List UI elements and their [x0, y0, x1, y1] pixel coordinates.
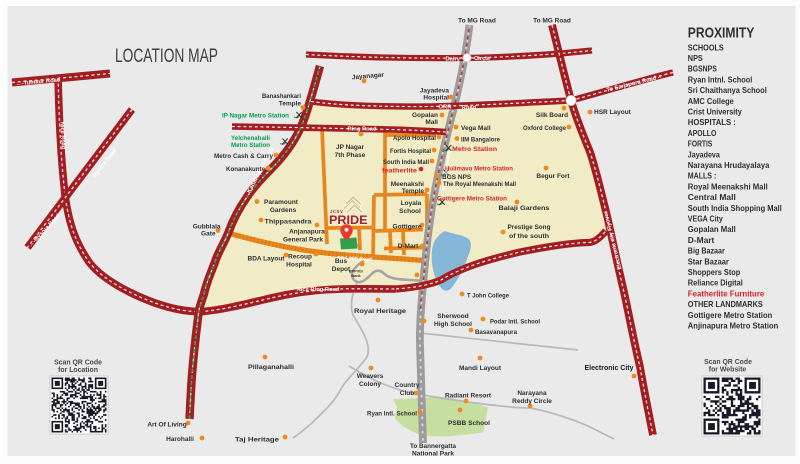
svg-text:Scan QR Code: Scan QR Code	[54, 360, 102, 367]
svg-text:Jayadeva: Jayadeva	[420, 88, 450, 95]
svg-text:Sri Chaithanya School: Sri Chaithanya School	[688, 86, 767, 95]
svg-text:Vega Mall: Vega Mall	[461, 125, 491, 132]
svg-text:Reliance Digital: Reliance Digital	[688, 279, 743, 288]
svg-text:BGSNPS: BGSNPS	[688, 65, 718, 74]
svg-text:T John College: T John College	[467, 293, 509, 300]
svg-text:Weavers: Weavers	[357, 373, 384, 380]
svg-text:Metro Cash & Carry: Metro Cash & Carry	[214, 153, 273, 160]
svg-text:Bus: Bus	[335, 258, 348, 265]
svg-text:Gopalan: Gopalan	[412, 112, 438, 119]
svg-text:Apolo Hospital: Apolo Hospital	[393, 135, 436, 142]
svg-text:Circle: Circle	[474, 56, 491, 62]
svg-text:Big Bazaar: Big Bazaar	[688, 247, 725, 256]
svg-text:Colony: Colony	[359, 381, 381, 388]
svg-text:Gardens: Gardens	[270, 207, 297, 214]
svg-text:OTHER LANDMARKS: OTHER LANDMARKS	[688, 300, 763, 309]
svg-text:Ryan Intnl. School: Ryan Intnl. School	[688, 75, 753, 84]
svg-text:Narayana Hrudayalaya: Narayana Hrudayalaya	[688, 161, 770, 170]
svg-text:Silk Board: Silk Board	[536, 112, 568, 119]
svg-text:Radiant Resort: Radiant Resort	[445, 393, 492, 400]
svg-text:General Park: General Park	[283, 237, 323, 244]
svg-text:Art Of Living: Art Of Living	[147, 422, 186, 429]
svg-text:Begur Fort: Begur Fort	[536, 173, 570, 180]
svg-text:HSR Layout: HSR Layout	[594, 109, 632, 116]
svg-text:Shoppers Stop: Shoppers Stop	[688, 268, 741, 277]
svg-text:Gottigere Metro Station: Gottigere Metro Station	[688, 311, 773, 320]
svg-text:Country: Country	[395, 382, 420, 389]
svg-text:7th Phase: 7th Phase	[335, 152, 366, 159]
svg-text:Temple: Temple	[402, 188, 425, 195]
svg-text:FORTIS: FORTIS	[688, 140, 713, 149]
svg-text:JP Nagar: JP Nagar	[336, 144, 365, 151]
svg-text:Central Mall: Central Mall	[688, 193, 736, 202]
svg-text:AMC College: AMC College	[688, 97, 735, 106]
svg-text:Gate: Gate	[201, 231, 216, 238]
svg-text:Nice Ring Road: Nice Ring Road	[297, 287, 340, 293]
svg-text:Royal Meenakshi Mall: Royal Meenakshi Mall	[688, 182, 768, 191]
svg-text:Hospital: Hospital	[286, 262, 312, 269]
svg-text:Recoup: Recoup	[288, 254, 312, 261]
svg-text:Featherlite Furniture: Featherlite Furniture	[688, 289, 765, 298]
svg-text:SCHOOLS: SCHOOLS	[688, 43, 724, 52]
svg-text:Hospital: Hospital	[423, 95, 449, 102]
svg-text:Mall: Mall	[425, 119, 438, 126]
svg-text:South India Shopping Mall: South India Shopping Mall	[688, 204, 782, 213]
svg-text:Metro Station: Metro Station	[452, 146, 497, 153]
svg-text:Star Bazaar: Star Bazaar	[688, 257, 729, 266]
svg-text:Loyala: Loyala	[401, 200, 422, 207]
svg-text:Basavanapura: Basavanapura	[475, 329, 517, 336]
svg-text:Bank: Bank	[351, 274, 361, 278]
svg-text:Prestige Song: Prestige Song	[508, 224, 551, 231]
svg-text:for Website: for Website	[709, 366, 747, 373]
svg-text:HOSPITALS :: HOSPITALS :	[688, 118, 736, 127]
svg-text:D-Mart: D-Mart	[398, 243, 419, 250]
svg-text:Reddy Circle: Reddy Circle	[512, 398, 552, 405]
svg-text:Hulimavu Metro Station: Hulimavu Metro Station	[445, 166, 513, 173]
svg-text:To MG Road: To MG Road	[458, 18, 496, 25]
svg-text:IIM Bangalore: IIM Bangalore	[461, 137, 500, 144]
svg-text:PSBB School: PSBB School	[448, 420, 490, 427]
svg-text:Banashankari: Banashankari	[262, 93, 301, 100]
svg-text:Yelchenahalli: Yelchenahalli	[231, 135, 270, 142]
svg-text:Konanakunte: Konanakunte	[226, 166, 265, 173]
svg-text:BPPVtlr: BPPVtlr	[349, 270, 364, 274]
svg-text:Electronic City: Electronic City	[585, 363, 635, 372]
svg-text:Ring Road: Ring Road	[348, 127, 377, 133]
svg-text:Club: Club	[400, 390, 414, 397]
svg-text:VEGA City: VEGA City	[688, 215, 723, 224]
svg-text:Narayana: Narayana	[517, 390, 547, 397]
svg-text:IP Nagar Metro Station: IP Nagar Metro Station	[222, 113, 289, 120]
svg-text:Scan QR Code: Scan QR Code	[704, 359, 752, 366]
svg-text:JCSV: JCSV	[330, 209, 343, 214]
svg-text:Dairy: Dairy	[445, 56, 460, 62]
svg-text:BGS NPS: BGS NPS	[442, 174, 472, 181]
svg-text:PRIDE: PRIDE	[329, 215, 368, 227]
svg-text:Anjinapura Metro Station: Anjinapura Metro Station	[688, 322, 779, 331]
svg-text:Fortis Hospital: Fortis Hospital	[390, 148, 431, 155]
svg-text:Metro Station: Metro Station	[231, 142, 270, 149]
svg-text:Jayadeva: Jayadeva	[688, 150, 720, 159]
svg-text:The Royal Meenakshi Mall: The Royal Meenakshi Mall	[443, 181, 516, 188]
svg-text:Gopalan Mall: Gopalan Mall	[688, 225, 736, 234]
svg-text:Gottigere Metro Station: Gottigere Metro Station	[437, 196, 507, 203]
svg-text:for Location: for Location	[58, 367, 98, 374]
svg-text:NPS: NPS	[688, 54, 704, 63]
svg-text:Anjanapura: Anjanapura	[289, 229, 325, 236]
svg-text:Podar Intl. School: Podar Intl. School	[490, 319, 540, 326]
svg-text:Sherwood: Sherwood	[437, 313, 468, 320]
svg-text:Road: Road	[462, 105, 477, 111]
svg-text:Taj Heritage: Taj Heritage	[235, 437, 279, 444]
svg-text:Balaji Gardens: Balaji Gardens	[499, 205, 550, 212]
svg-text:South India Mall: South India Mall	[383, 159, 429, 166]
svg-text:Royal Heritage: Royal Heritage	[354, 308, 406, 315]
svg-text:of the south: of the south	[509, 233, 549, 240]
svg-text:National Park: National Park	[412, 451, 454, 458]
svg-text:To MG Road: To MG Road	[533, 18, 571, 25]
svg-text:PROXIMITY: PROXIMITY	[688, 26, 755, 42]
svg-text:APOLLO: APOLLO	[688, 129, 717, 138]
svg-text:Harohalli: Harohalli	[166, 436, 194, 443]
svg-text:D-Mart: D-Mart	[688, 236, 715, 245]
svg-text:High School: High School	[434, 321, 472, 328]
svg-text:Temple: Temple	[279, 101, 302, 108]
svg-text:Oxford College: Oxford College	[523, 125, 566, 132]
svg-text:Mandi Layout: Mandi Layout	[459, 365, 502, 372]
svg-text:ORR: ORR	[439, 105, 453, 111]
svg-text:LOCATION MAP: LOCATION MAP	[115, 45, 218, 67]
svg-text:BDA Layout: BDA Layout	[248, 256, 286, 263]
svg-text:featherlite: featherlite	[382, 168, 417, 175]
svg-text:School: School	[399, 208, 421, 215]
svg-text:Paramount: Paramount	[264, 199, 299, 206]
svg-text:MALLS :: MALLS :	[688, 172, 717, 181]
svg-text:Ryan Intl. School: Ryan Intl. School	[367, 411, 417, 418]
svg-text:Gubblala: Gubblala	[193, 224, 221, 231]
svg-text:To Bannergatta: To Bannergatta	[410, 443, 456, 450]
svg-text:Meenakshi: Meenakshi	[391, 181, 424, 188]
svg-text:Pillaganahalli: Pillaganahalli	[248, 364, 294, 371]
svg-text:Crist University: Crist University	[688, 108, 742, 117]
svg-text:Gottigere: Gottigere	[393, 224, 422, 231]
svg-text:Thippasandra: Thippasandra	[265, 219, 312, 226]
